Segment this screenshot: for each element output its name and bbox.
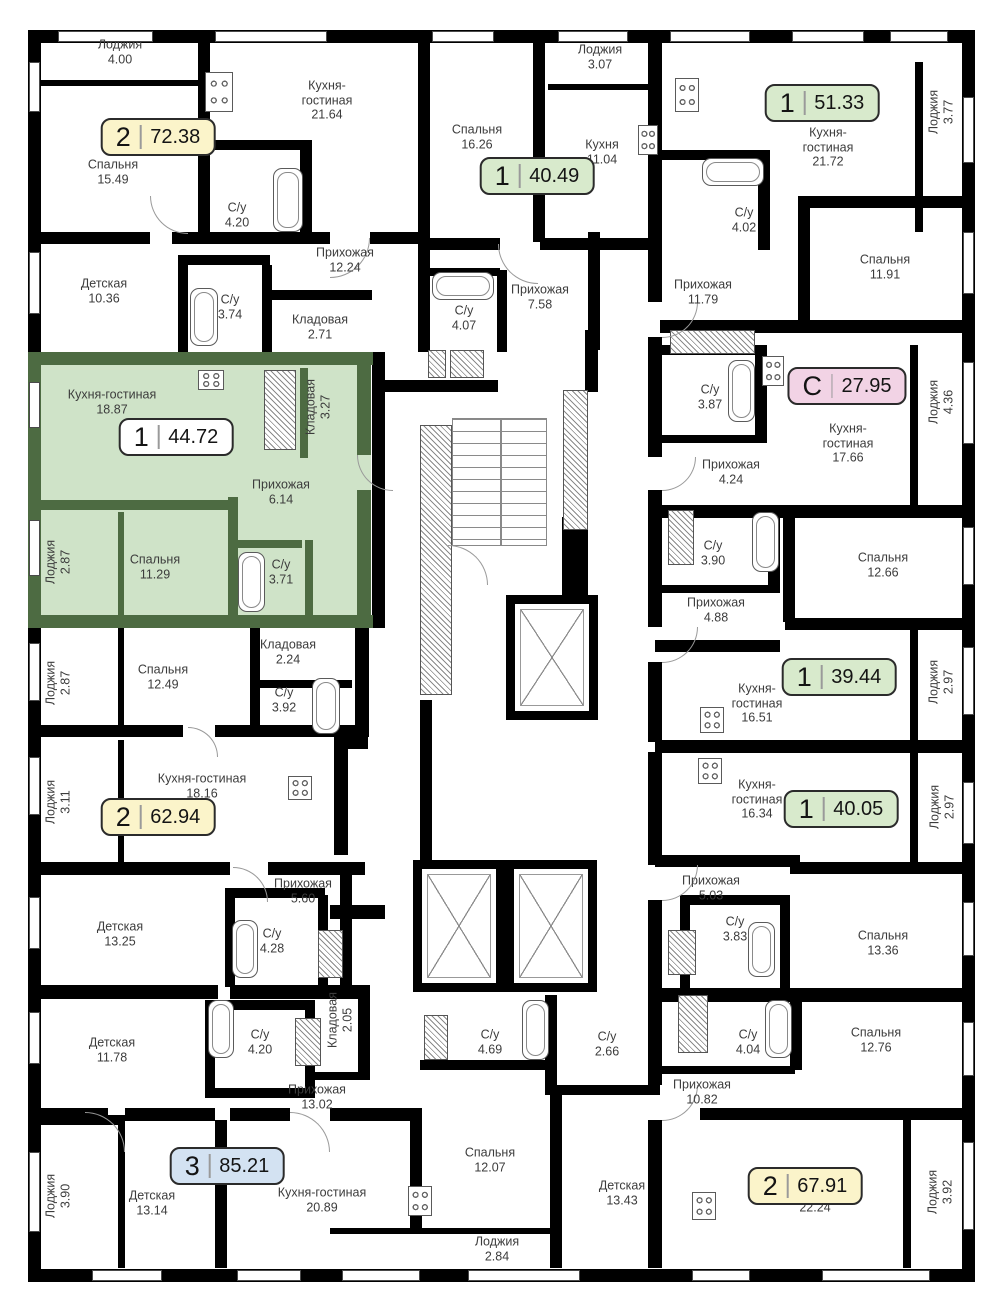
- room-label: Кладовая 2.71: [292, 313, 348, 342]
- window: [963, 782, 974, 844]
- bathtub-inner: [236, 924, 254, 974]
- door-arc: [188, 727, 218, 757]
- badge-area: 27.95: [841, 375, 891, 398]
- wall: [648, 900, 662, 988]
- bathtub-icon: [190, 288, 218, 346]
- room-label: Прихожая 4.88: [687, 596, 745, 625]
- window: [670, 31, 750, 42]
- bathtub-inner: [242, 556, 261, 608]
- window: [822, 1270, 930, 1281]
- apartment-badge: 139.44: [782, 658, 897, 696]
- elevator-x-icon: [519, 874, 583, 978]
- room-label: С/у 2.66: [595, 1030, 619, 1059]
- room-label: Кухня-гостиная 18.16: [158, 772, 246, 801]
- wall: [420, 1060, 550, 1070]
- bathtub-icon: [728, 360, 755, 422]
- stove-icon: [762, 356, 784, 386]
- badge-room-count: 1: [134, 422, 149, 453]
- wall: [783, 517, 795, 622]
- window: [963, 1142, 974, 1230]
- window: [963, 902, 974, 956]
- room-label: Спальня 11.91: [860, 253, 910, 282]
- room-label: Спальня 13.36: [858, 929, 908, 958]
- window: [792, 31, 864, 42]
- wall: [330, 1228, 555, 1234]
- wall: [680, 895, 790, 905]
- elevator-shaft: [506, 595, 598, 720]
- wall: [497, 270, 507, 352]
- wall: [178, 258, 188, 352]
- elevator-shaft: [505, 860, 597, 992]
- bathtub-inner: [194, 292, 214, 342]
- wall: [262, 265, 272, 352]
- wall: [330, 1108, 415, 1121]
- room-label: Лоджия 3.92: [926, 1170, 955, 1214]
- highlighted-apartment-wall: [357, 352, 371, 455]
- wall: [548, 84, 660, 90]
- room-label: С/у 3.90: [701, 539, 725, 568]
- wall: [648, 517, 662, 627]
- room-label: Лоджия 2.97: [927, 660, 956, 704]
- highlighted-apartment-wall: [28, 352, 373, 365]
- window: [29, 252, 40, 314]
- wall: [420, 700, 432, 862]
- wall: [585, 330, 598, 392]
- badge-separator: [519, 164, 521, 188]
- room-label: Кухня- гостиная 16.34: [732, 777, 783, 821]
- door-arc: [290, 1112, 330, 1152]
- wall: [250, 627, 260, 727]
- wall: [910, 630, 918, 752]
- door-arc: [662, 457, 696, 491]
- wall: [540, 238, 595, 250]
- wall: [178, 255, 270, 265]
- room-label: Детская 10.36: [81, 277, 127, 306]
- badge-area: 72.38: [150, 126, 200, 149]
- shaft-hatch: [668, 930, 696, 975]
- window: [963, 647, 974, 715]
- wall: [28, 985, 218, 999]
- shaft-hatch: [668, 510, 694, 565]
- wall: [372, 352, 385, 628]
- window: [29, 897, 40, 949]
- wall: [118, 627, 124, 727]
- wall: [910, 752, 918, 864]
- room-label: Детская 13.14: [129, 1189, 175, 1218]
- wall: [418, 30, 430, 352]
- badge-room-count: 1: [780, 88, 795, 119]
- wall: [205, 1088, 315, 1098]
- badge-separator: [823, 797, 825, 821]
- room-label: Прихожая 7.58: [511, 283, 569, 312]
- elevator-x-icon: [520, 609, 584, 706]
- room-label: Лоджия 3.77: [927, 90, 956, 134]
- bathtub-inner: [706, 162, 760, 182]
- wall: [123, 725, 183, 737]
- window: [29, 757, 40, 815]
- shaft-hatch: [428, 350, 446, 378]
- room-label: С/у 3.83: [723, 915, 747, 944]
- room-label: Лоджия 2.97: [928, 785, 957, 829]
- room-label: С/у 4.02: [732, 206, 756, 235]
- wall: [798, 196, 810, 332]
- wall: [660, 585, 780, 593]
- door-arc: [233, 867, 268, 902]
- bathtub-inner: [436, 276, 490, 296]
- badge-area: 51.33: [814, 92, 864, 115]
- bathtub-icon: [432, 272, 494, 300]
- badge-separator: [821, 665, 823, 689]
- wall: [910, 345, 918, 507]
- wall: [648, 30, 662, 302]
- wall: [660, 435, 760, 443]
- room-label: Кладовая 2.24: [260, 638, 316, 667]
- apartment-badge: 140.49: [480, 157, 595, 195]
- badge-area: 67.91: [797, 1175, 847, 1198]
- shaft-hatch: [318, 930, 343, 978]
- bathtub-icon: [702, 158, 764, 186]
- room-label: С/у 4.28: [260, 927, 284, 956]
- wall: [798, 196, 975, 208]
- room-label: Кухня- гостиная 21.64: [302, 78, 353, 122]
- window: [468, 1270, 580, 1281]
- window: [342, 1270, 420, 1281]
- highlighted-apartment-wall: [300, 368, 308, 458]
- wall: [700, 1108, 975, 1120]
- staircase-divider: [500, 419, 502, 545]
- room-label: Спальня 16.26: [452, 123, 502, 152]
- stove-icon: [698, 758, 722, 784]
- apartment-badge: С27.95: [787, 367, 906, 405]
- wall: [28, 232, 150, 244]
- window: [29, 62, 40, 112]
- room-label: С/у 4.04: [736, 1028, 760, 1057]
- wall: [903, 1120, 911, 1268]
- shaft-hatch: [424, 1015, 448, 1060]
- bathtub-icon: [232, 920, 258, 978]
- badge-separator: [158, 425, 160, 449]
- bathtub-icon: [752, 512, 779, 572]
- window: [963, 362, 974, 444]
- wall: [785, 618, 975, 630]
- stove-icon: [700, 707, 724, 733]
- window: [963, 232, 974, 294]
- window: [890, 31, 948, 42]
- bathtub-inner: [526, 1004, 545, 1056]
- window: [92, 1270, 162, 1281]
- wall: [380, 380, 460, 392]
- window: [432, 31, 494, 42]
- stove-icon: [638, 125, 658, 155]
- wall: [655, 740, 975, 753]
- window: [963, 97, 974, 163]
- apartment-badge: 272.38: [101, 118, 216, 156]
- wall: [358, 995, 370, 1080]
- highlighted-apartment-wall: [28, 615, 373, 628]
- room-label: Кладовая 2.05: [326, 992, 355, 1048]
- wall: [330, 905, 385, 919]
- bathtub-inner: [277, 172, 299, 228]
- window: [215, 31, 327, 42]
- apartment-badge: 140.05: [784, 790, 899, 828]
- badge-room-count: 2: [763, 1171, 778, 1202]
- bathtub-icon: [238, 552, 265, 612]
- room-label: Детская 13.25: [97, 920, 143, 949]
- window: [29, 1012, 40, 1064]
- room-label: Спальня 12.76: [851, 1026, 901, 1055]
- door-arc: [330, 238, 370, 278]
- stove-icon: [205, 72, 233, 112]
- window: [29, 520, 40, 576]
- room-label: С/у 3.92: [272, 686, 296, 715]
- wall: [40, 80, 203, 86]
- window: [58, 31, 153, 42]
- bathtub-inner: [769, 1004, 788, 1054]
- apartment-badge: 151.33: [765, 84, 880, 122]
- wall: [648, 662, 662, 742]
- room-label: С/у 4.07: [452, 304, 476, 333]
- room-label: С/у 4.20: [248, 1028, 272, 1057]
- highlighted-apartment-wall: [305, 540, 313, 618]
- badge-room-count: С: [802, 371, 822, 402]
- bathtub-inner: [752, 926, 771, 973]
- highlighted-apartment-wall: [232, 540, 302, 548]
- door-arc: [662, 1085, 698, 1121]
- shaft-hatch: [670, 330, 755, 354]
- wall: [780, 895, 790, 990]
- elevator-shaft: [413, 860, 505, 992]
- apartment-badge: 262.94: [101, 798, 216, 836]
- window: [963, 527, 974, 585]
- stove-icon: [408, 1186, 432, 1216]
- window: [237, 1270, 301, 1281]
- room-label: Кухня-гостиная 20.89: [278, 1186, 366, 1215]
- stove-icon: [288, 776, 312, 800]
- wall: [355, 627, 369, 737]
- door-arc: [150, 196, 188, 234]
- door-arc: [448, 545, 488, 585]
- badge-separator: [140, 125, 142, 149]
- apartment-badge: 144.72: [119, 418, 234, 456]
- room-label: Прихожая 4.24: [702, 458, 760, 487]
- bathtub-inner: [732, 364, 751, 418]
- window: [963, 1022, 974, 1076]
- shaft-hatch: [678, 995, 708, 1053]
- room-label: Спальня 12.49: [138, 663, 188, 692]
- room-label: Лоджия 3.07: [578, 43, 622, 72]
- room-label: С/у 3.74: [218, 293, 242, 322]
- shaft-hatch: [450, 350, 484, 378]
- wall: [550, 1095, 562, 1268]
- room-label: Кухня- гостиная 17.66: [823, 421, 874, 465]
- room-label: Кухня- гостиная 16.51: [732, 681, 783, 725]
- wall: [215, 1120, 227, 1268]
- room-label: Лоджия 3.90: [44, 1174, 73, 1218]
- shaft-hatch: [264, 370, 296, 450]
- wall: [648, 752, 662, 865]
- window: [558, 31, 628, 42]
- wall: [430, 238, 500, 250]
- wall: [28, 862, 128, 875]
- bathtub-icon: [208, 1000, 234, 1058]
- highlighted-apartment-wall: [357, 490, 371, 628]
- shaft-hatch: [295, 1018, 321, 1066]
- window: [29, 643, 40, 701]
- wall: [660, 1066, 795, 1074]
- room-label: С/у 4.69: [478, 1028, 502, 1057]
- badge-room-count: 2: [116, 802, 131, 833]
- badge-room-count: 1: [797, 662, 812, 693]
- bathtub-icon: [522, 1000, 549, 1060]
- room-label: Лоджия 2.84: [475, 1235, 519, 1264]
- wall: [545, 1085, 660, 1095]
- apartment-badge: 267.91: [748, 1167, 863, 1205]
- highlighted-apartment-wall: [118, 512, 124, 618]
- wall: [125, 862, 230, 875]
- room-label: Лоджия 2.87: [44, 661, 73, 705]
- wall: [655, 505, 975, 518]
- wall: [334, 745, 348, 855]
- floor-plan: Лоджия 4.00Спальня 15.49Кухня- гостиная …: [0, 0, 1000, 1312]
- wall: [28, 725, 123, 737]
- apartment-badge: 385.21: [170, 1147, 285, 1185]
- badge-separator: [140, 805, 142, 829]
- wall: [230, 1108, 290, 1121]
- room-label: Лоджия 4.36: [927, 380, 956, 424]
- badge-room-count: 1: [495, 161, 510, 192]
- stove-icon: [692, 1192, 716, 1220]
- room-label: Лоджия 3.11: [44, 780, 73, 824]
- wall: [262, 290, 372, 300]
- wall: [230, 985, 370, 999]
- door-arc: [662, 627, 698, 663]
- room-label: Спальня 12.66: [858, 551, 908, 580]
- badge-room-count: 3: [185, 1151, 200, 1182]
- wall: [315, 1072, 370, 1080]
- room-label: Спальня 12.07: [465, 1146, 515, 1175]
- badge-separator: [209, 1154, 211, 1178]
- highlighted-apartment-wall: [228, 497, 238, 618]
- bathtub-inner: [316, 682, 336, 730]
- badge-area: 85.21: [219, 1155, 269, 1178]
- staircase: [452, 418, 547, 546]
- badge-area: 62.94: [150, 806, 200, 829]
- wall: [648, 1120, 662, 1268]
- badge-room-count: 1: [799, 794, 814, 825]
- shaft-hatch: [563, 390, 588, 530]
- bathtub-inner: [756, 516, 775, 568]
- bathtub-icon: [273, 168, 303, 232]
- wall: [198, 232, 330, 244]
- wall: [790, 862, 975, 874]
- elevator-x-icon: [427, 874, 491, 978]
- badge-area: 40.49: [529, 165, 579, 188]
- stove-icon: [198, 370, 224, 390]
- room-label: С/у 4.20: [225, 201, 249, 230]
- highlighted-apartment-area: [28, 352, 371, 628]
- badge-area: 44.72: [168, 426, 218, 449]
- bathtub-icon: [765, 1000, 792, 1058]
- window: [29, 1152, 40, 1232]
- window: [29, 382, 40, 428]
- bathtub-inner: [212, 1004, 230, 1054]
- badge-area: 39.44: [831, 666, 881, 689]
- room-label: С/у 3.87: [698, 383, 722, 412]
- badge-separator: [787, 1174, 789, 1198]
- bathtub-icon: [748, 922, 775, 977]
- badge-area: 40.05: [833, 798, 883, 821]
- room-label: Детская 11.78: [89, 1036, 135, 1065]
- room-label: Кухня- гостиная 21.72: [803, 125, 854, 169]
- badge-separator: [831, 374, 833, 398]
- badge-separator: [804, 91, 806, 115]
- highlighted-apartment-wall: [28, 500, 233, 510]
- room-label: Детская 13.43: [599, 1179, 645, 1208]
- stove-icon: [675, 78, 699, 112]
- window: [692, 1270, 750, 1281]
- bathtub-icon: [312, 678, 340, 734]
- badge-room-count: 2: [116, 122, 131, 153]
- room-label: Спальня 15.49: [88, 158, 138, 187]
- wall: [125, 1108, 215, 1121]
- wall: [533, 30, 545, 242]
